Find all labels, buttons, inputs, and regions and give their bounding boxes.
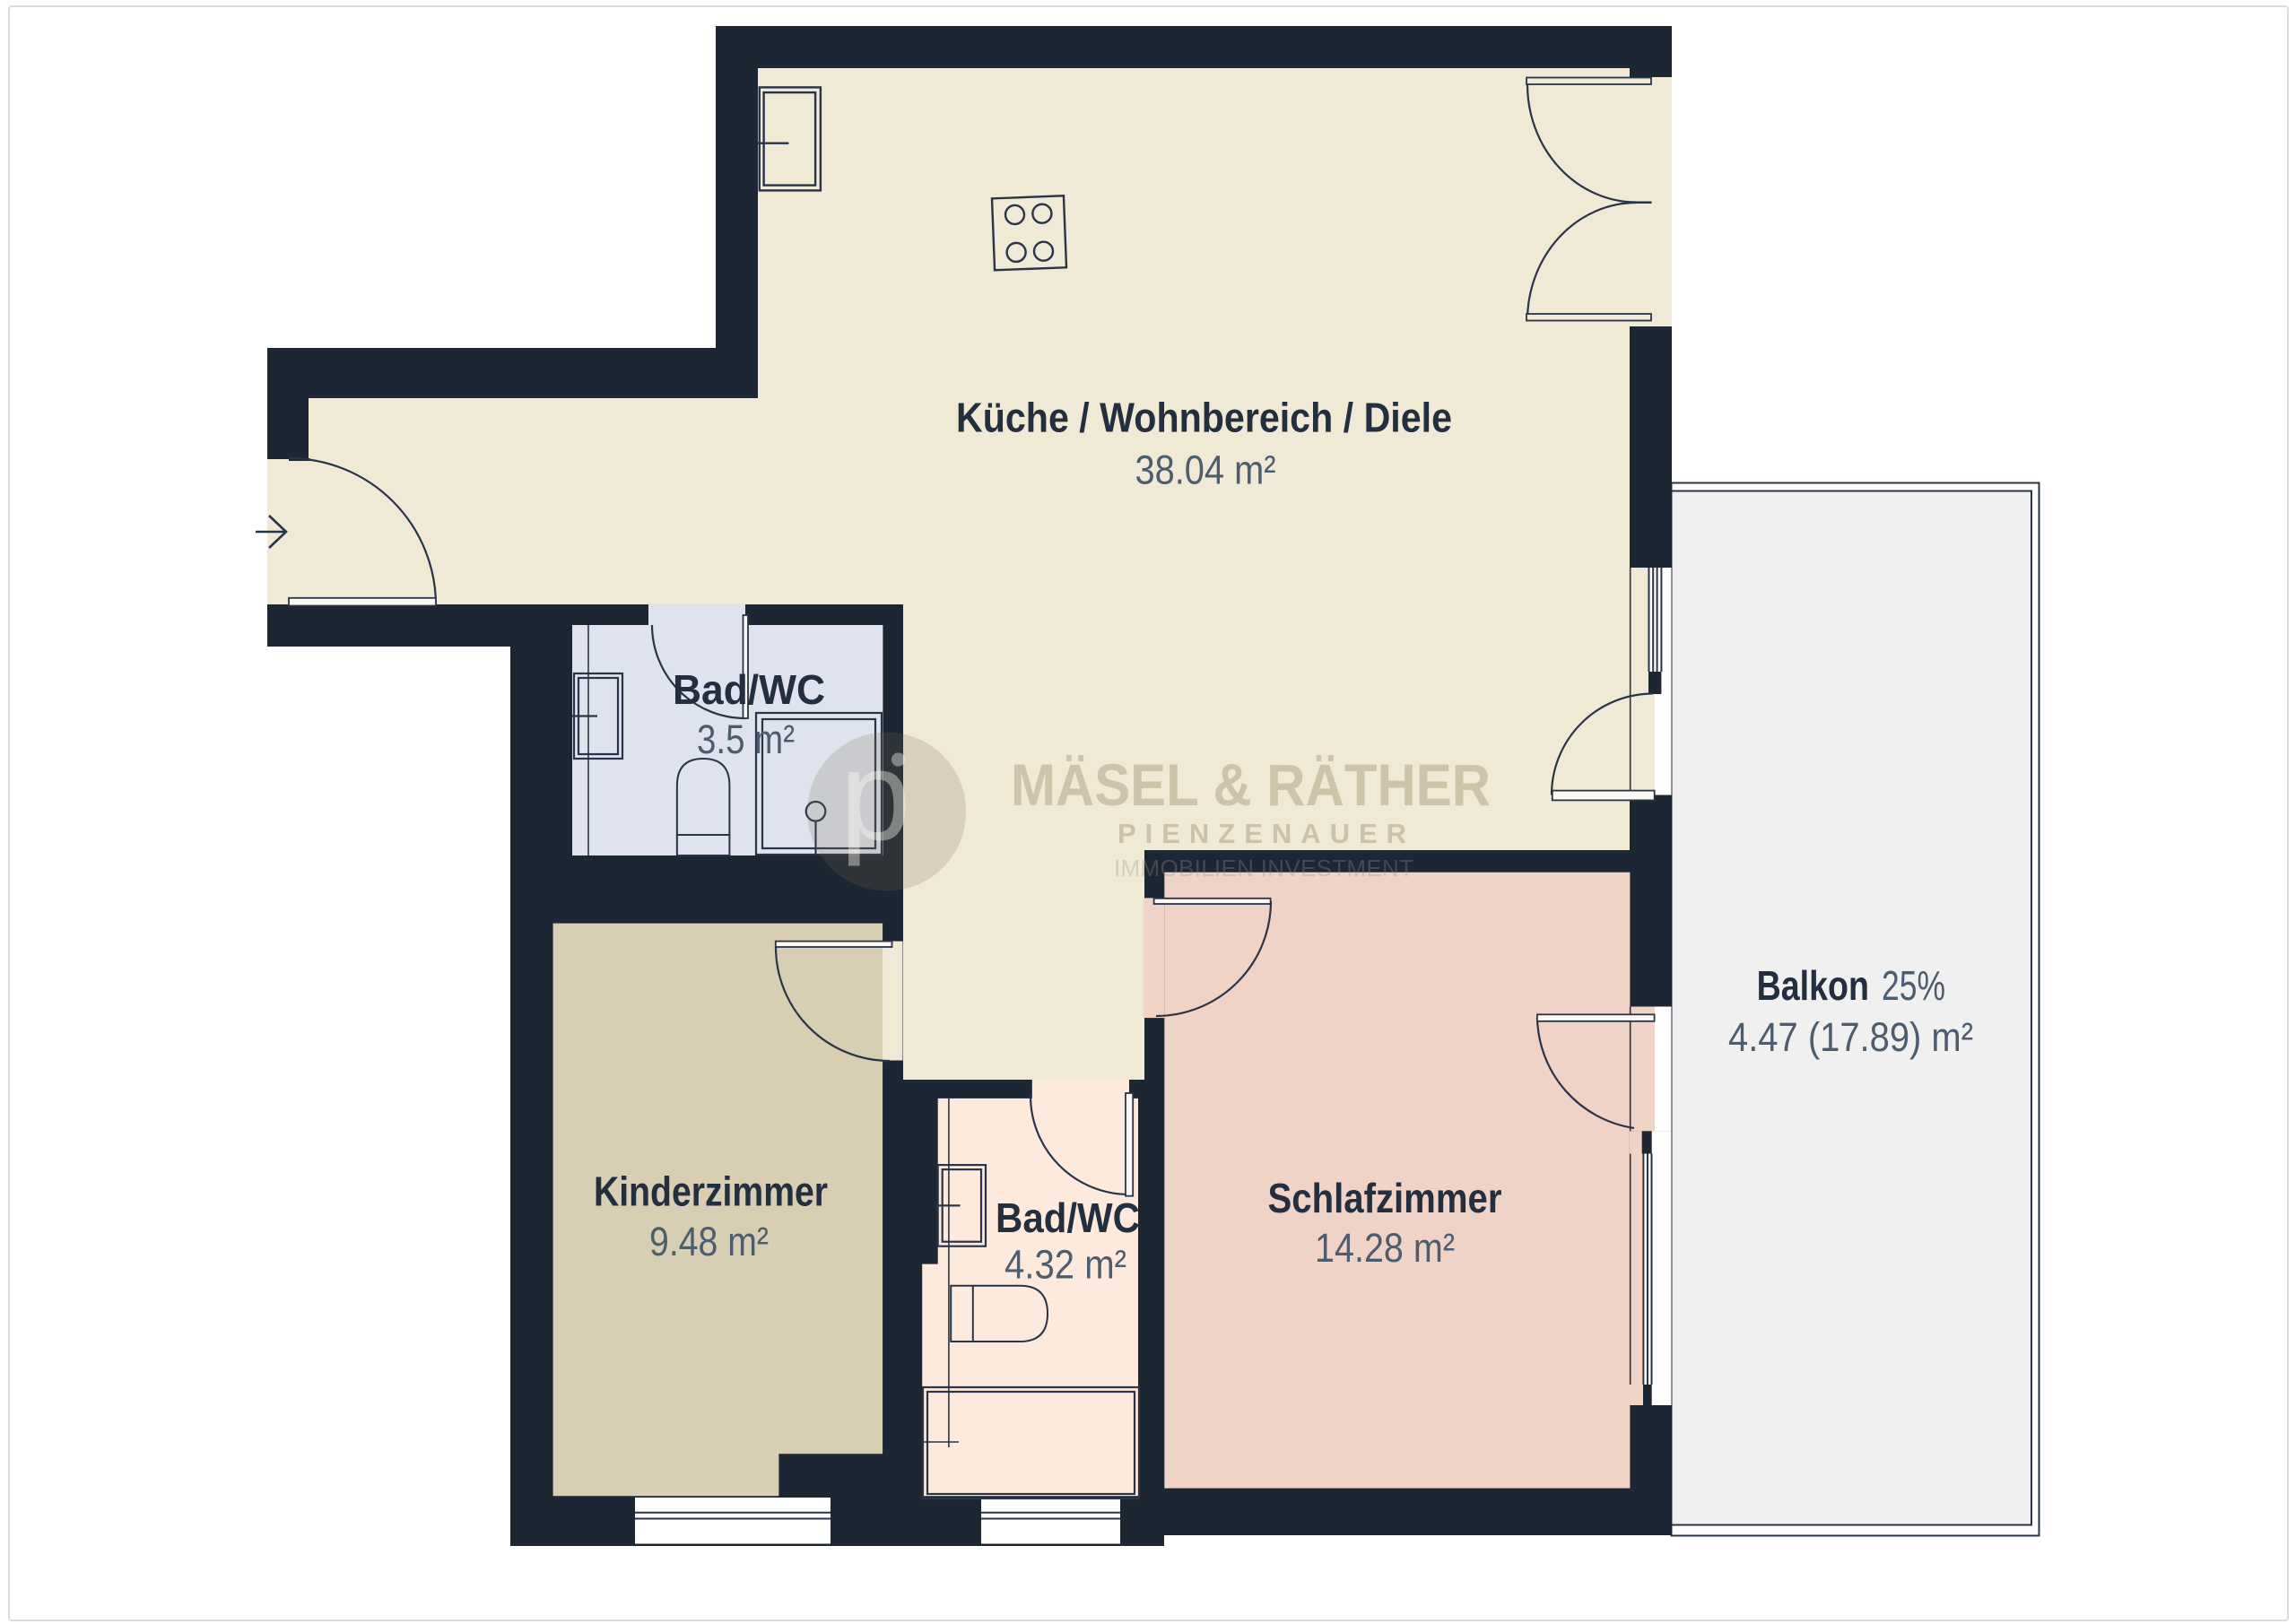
svg-text:3.5 m²: 3.5 m² bbox=[697, 716, 795, 762]
svg-text:PIENZENAUER: PIENZENAUER bbox=[1118, 818, 1406, 849]
svg-text:Balkon: Balkon bbox=[1757, 962, 1869, 1009]
svg-text:4.32 m²: 4.32 m² bbox=[1004, 1242, 1126, 1288]
svg-text:9.48 m²: 9.48 m² bbox=[649, 1219, 769, 1264]
svg-text:MÄSEL & RÄTHER: MÄSEL & RÄTHER bbox=[1011, 751, 1491, 818]
svg-text:Schlafzimmer: Schlafzimmer bbox=[1268, 1175, 1502, 1221]
svg-text:Bad/WC: Bad/WC bbox=[996, 1194, 1140, 1241]
svg-text:Kinderzimmer: Kinderzimmer bbox=[594, 1168, 828, 1215]
svg-text:38.04 m²: 38.04 m² bbox=[1135, 447, 1276, 493]
svg-text:Küche / Wohnbereich / Diele: Küche / Wohnbereich / Diele bbox=[956, 395, 1452, 441]
svg-text:14.28 m²: 14.28 m² bbox=[1315, 1225, 1455, 1271]
svg-text:4.47 (17.89) m²: 4.47 (17.89) m² bbox=[1728, 1014, 1973, 1060]
svg-text:25%: 25% bbox=[1882, 962, 1945, 1009]
svg-text:Bad/WC: Bad/WC bbox=[673, 666, 825, 713]
svg-text:IMMOBILIEN INVESTMENT: IMMOBILIEN INVESTMENT bbox=[1114, 855, 1413, 881]
svg-text:p: p bbox=[840, 725, 911, 867]
